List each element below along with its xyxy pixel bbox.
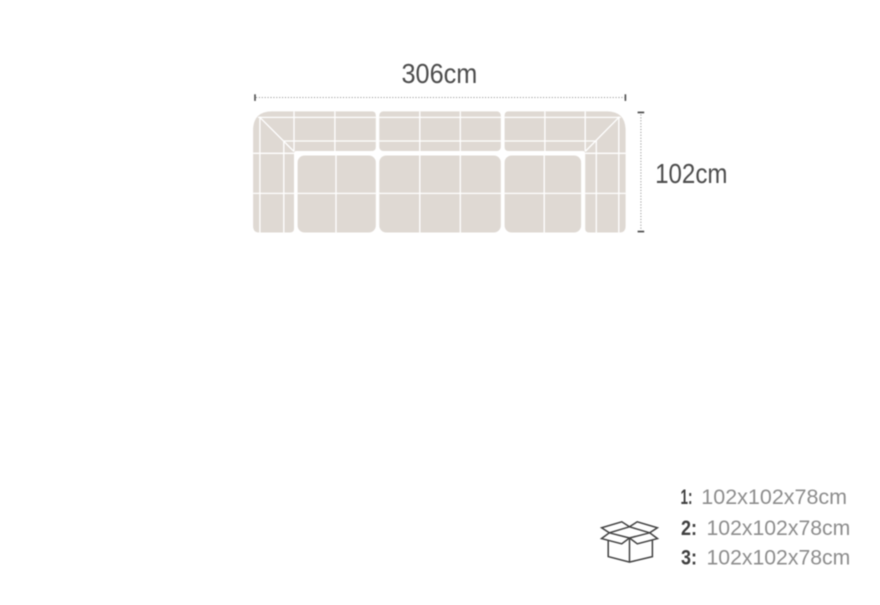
svg-text:3:: 3: [681,547,697,570]
svg-text:102x102x78cm: 102x102x78cm [707,517,851,540]
svg-text:102cm: 102cm [655,158,727,189]
svg-text:306cm: 306cm [402,58,478,89]
svg-text:102x102x78cm: 102x102x78cm [707,547,851,570]
svg-text:1:: 1: [681,486,693,509]
svg-text:102x102x78cm: 102x102x78cm [701,486,847,509]
svg-text:2:: 2: [681,517,697,540]
